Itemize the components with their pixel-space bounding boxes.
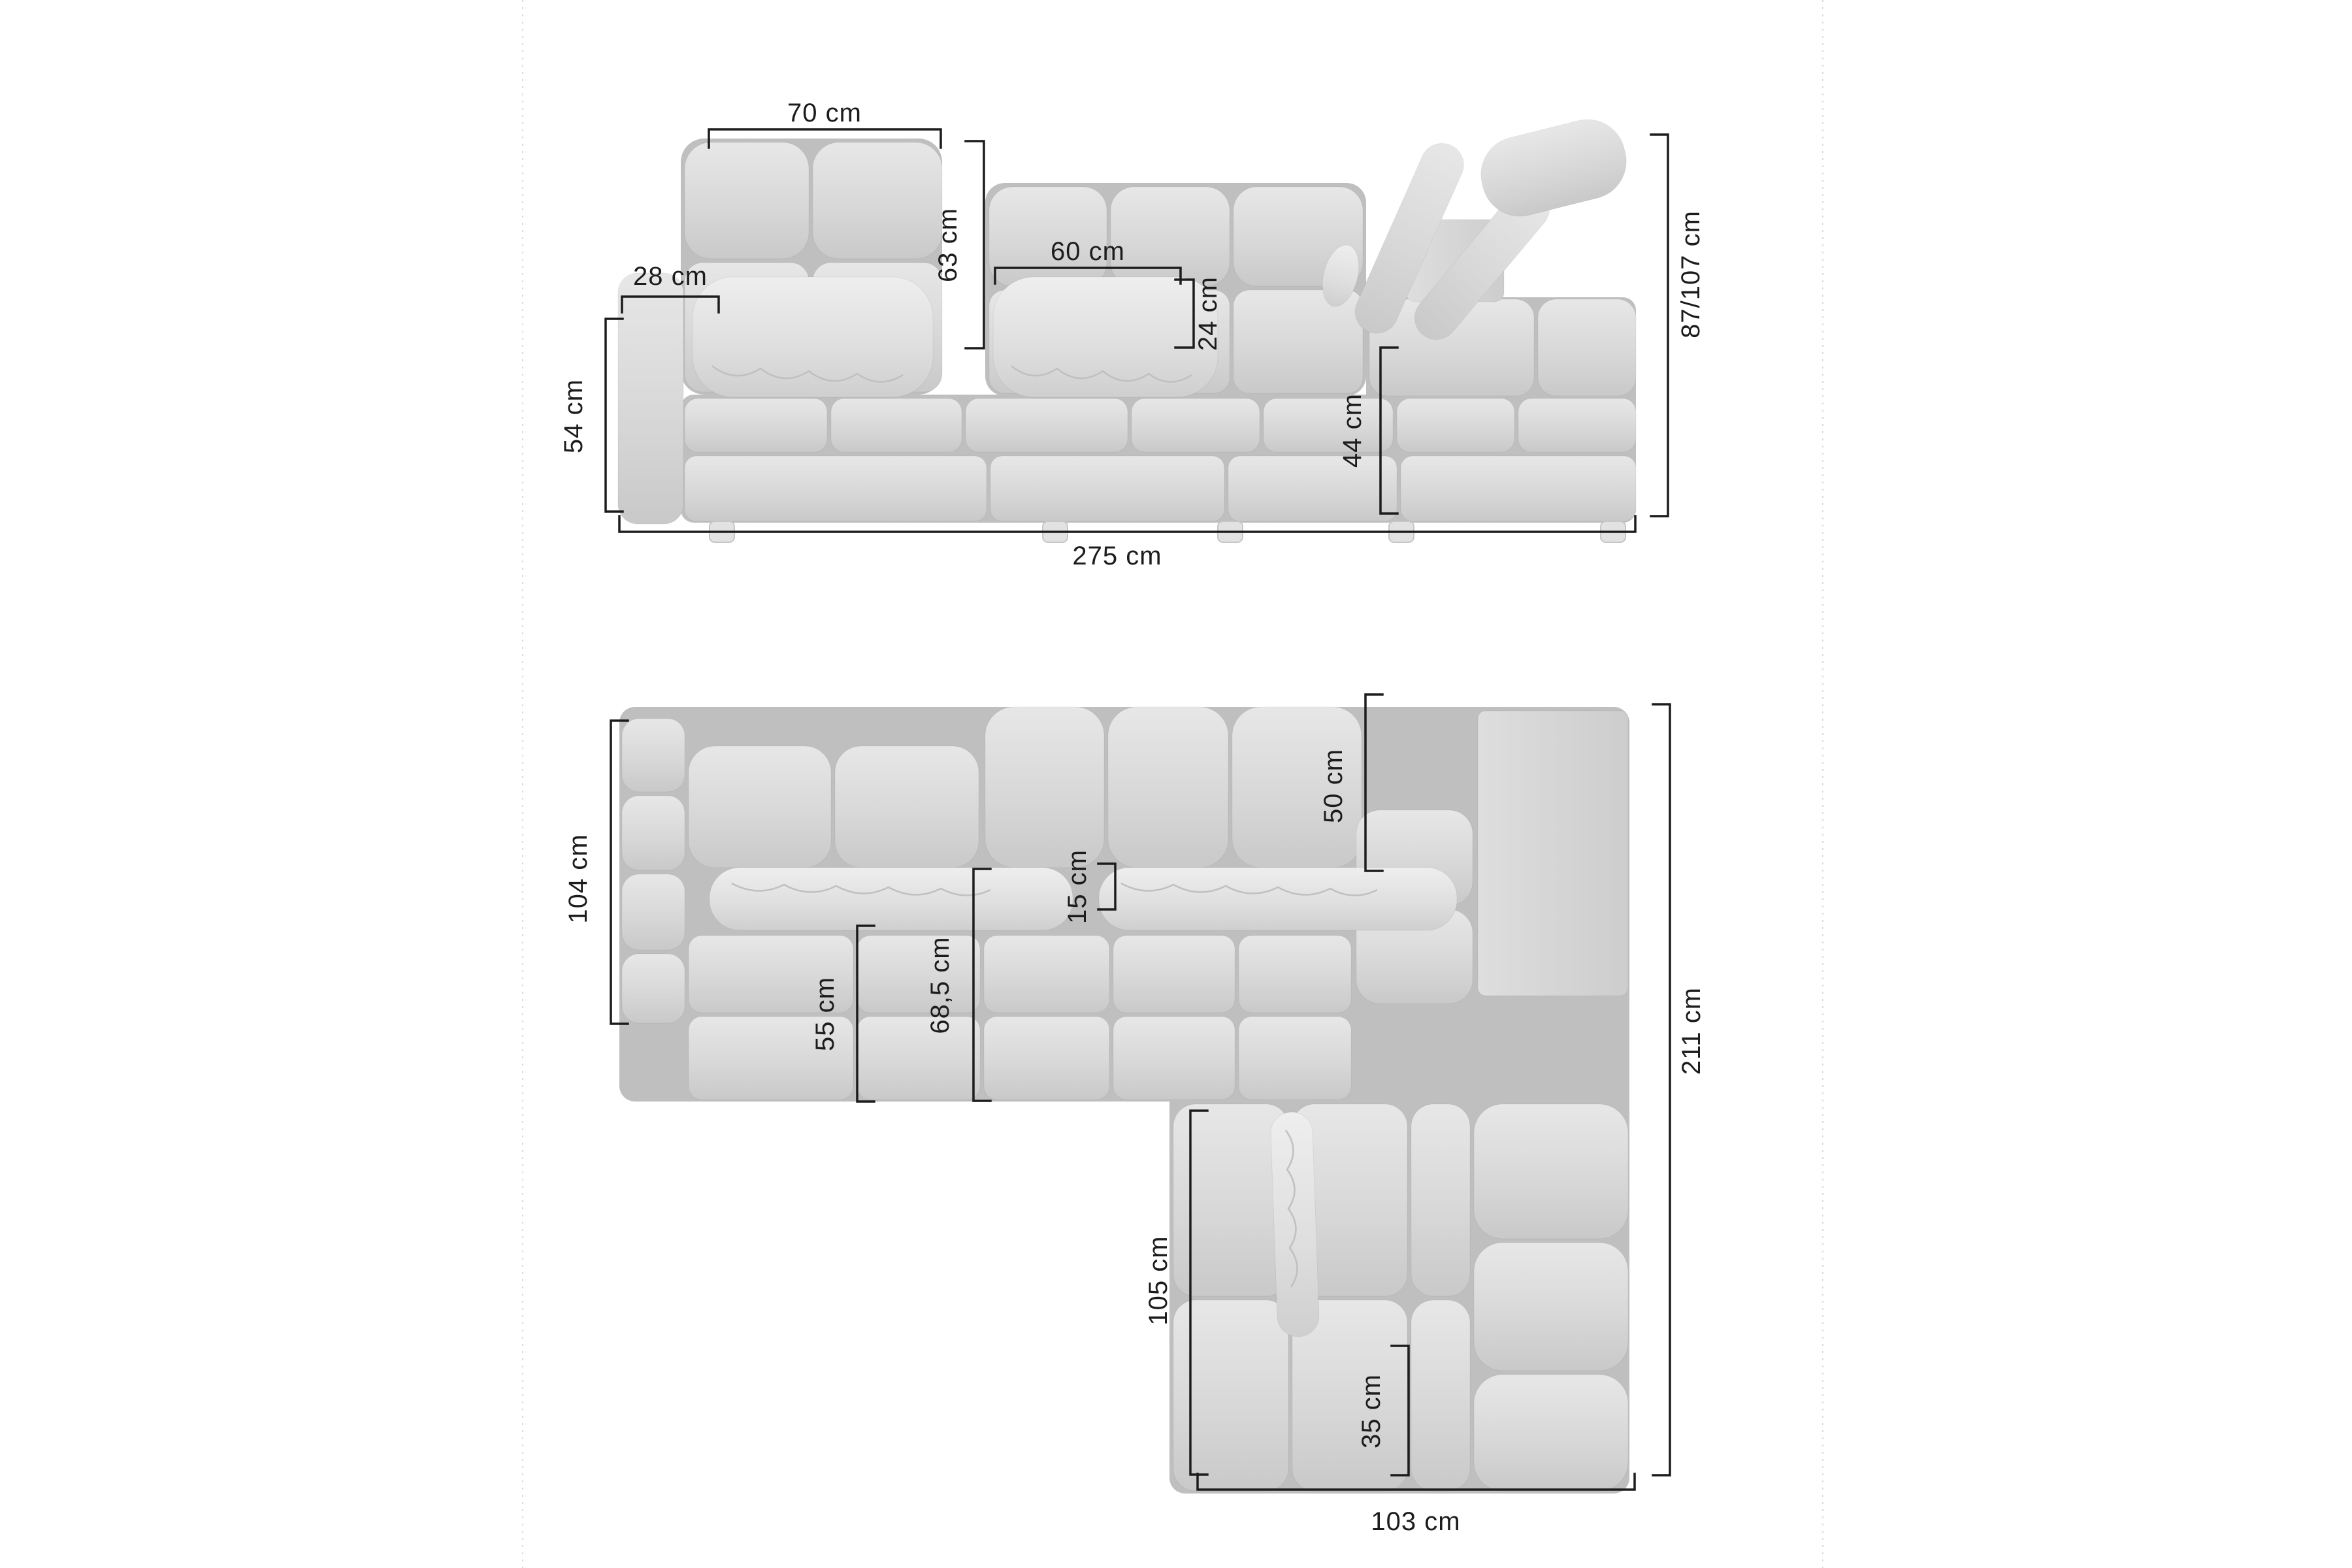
dimension-label: 103 cm (1371, 1507, 1460, 1536)
armrest-cushion (622, 719, 685, 792)
armrest-cushion (622, 954, 685, 1023)
dimension-bracket (1653, 704, 1670, 1475)
dimension-label: 44 cm (1338, 393, 1367, 468)
headrest-pad-raised (1473, 112, 1635, 225)
dimension-label: 87/107 cm (1676, 210, 1705, 338)
chaise-cushion (1411, 1104, 1470, 1296)
dimension-label: 211 cm (1677, 987, 1706, 1075)
sofa-front-illustration (618, 112, 1636, 542)
backrest-cushion (1111, 187, 1230, 286)
lumbar-pillow-top (710, 868, 1073, 930)
seat-cushion-top (1113, 1017, 1235, 1100)
backrest-cushion-top (985, 707, 1104, 868)
dimension-label: 60 cm (1051, 237, 1125, 266)
base-cushion (685, 456, 987, 521)
seat-cushion-top (984, 1017, 1109, 1100)
dimension-label: 54 cm (559, 379, 588, 453)
lumbar-pillow-top (1099, 868, 1457, 930)
lumbar-pillow (693, 277, 933, 397)
dimension-label: 28 cm (633, 262, 708, 291)
seat-cushion (685, 399, 827, 452)
dimension-label: 104 cm (564, 834, 593, 923)
dimension-label: 68,5 cm (926, 936, 955, 1034)
chaise-cushion (1411, 1300, 1470, 1491)
dimension-label: 105 cm (1144, 1235, 1173, 1325)
dimension-label: 15 cm (1063, 849, 1092, 924)
product-dimension-diagram: 70 cm 63 cm 28 cm 60 cm 24 cm 54 cm (0, 0, 2352, 1568)
seat-cushion (1397, 399, 1514, 452)
dim-body-depth: 104 cm (564, 721, 628, 1024)
sofa-top-illustration (619, 707, 1629, 1494)
seat-cushion (1518, 399, 1636, 452)
dimension-label: 50 cm (1319, 749, 1348, 823)
seat-cushion (1132, 399, 1260, 452)
top-view: 104 cm 50 cm 15 cm 68,5 cm 55 cm 211 cm (564, 694, 1706, 1536)
dim-total-depth: 211 cm (1653, 704, 1706, 1475)
backrest-cushion (813, 142, 942, 259)
chaise-side-cushion (1474, 1375, 1628, 1491)
chaise-side-cushion (1474, 1104, 1628, 1239)
seat-cushion-top (1239, 1017, 1351, 1100)
backrest-cushion (1233, 290, 1363, 393)
dimension-label: 24 cm (1194, 276, 1222, 351)
seat-cushion-top (984, 936, 1109, 1013)
backrest-cushion-top (689, 746, 831, 868)
dimension-label: 35 cm (1357, 1374, 1386, 1448)
dimension-bracket (966, 141, 984, 348)
seat-cushion-top (857, 936, 980, 1013)
backrest-cushion-top (835, 746, 979, 868)
base-cushion (1401, 456, 1636, 521)
armrest (618, 273, 683, 524)
seat-cushion (1264, 399, 1393, 452)
dim-total-width: 275 cm (619, 516, 1635, 570)
folded-backrest-panel (1478, 711, 1628, 996)
backrest-cushion-top (1108, 707, 1228, 868)
base-cushion (1228, 456, 1397, 521)
seat-cushion (831, 399, 962, 452)
seat-cushion-top (1113, 936, 1235, 1013)
seat-cushion-top (1239, 936, 1351, 1013)
dimension-bracket (1651, 135, 1668, 516)
dimension-label: 63 cm (934, 208, 962, 282)
dimension-label: 55 cm (811, 977, 840, 1051)
dim-armrest-height: 54 cm (559, 319, 623, 512)
seat-cushion (966, 399, 1128, 452)
armrest-cushion (622, 874, 685, 950)
seat-cushion-top (857, 1017, 980, 1100)
front-view: 70 cm 63 cm 28 cm 60 cm 24 cm 54 cm (559, 99, 1705, 570)
sofa-dimensions-canvas: 70 cm 63 cm 28 cm 60 cm 24 cm 54 cm (0, 0, 2352, 1568)
chaise-side-cushion (1474, 1243, 1628, 1371)
dimension-label: 275 cm (1072, 542, 1162, 570)
corner-seat-cushion (1538, 299, 1636, 396)
backrest-cushion (989, 187, 1107, 286)
dim-total-height: 87/107 cm (1651, 135, 1705, 516)
base-cushion (990, 456, 1224, 521)
armrest-cushion (622, 796, 685, 870)
dimension-label: 70 cm (787, 99, 862, 127)
backrest-cushion (685, 142, 809, 259)
